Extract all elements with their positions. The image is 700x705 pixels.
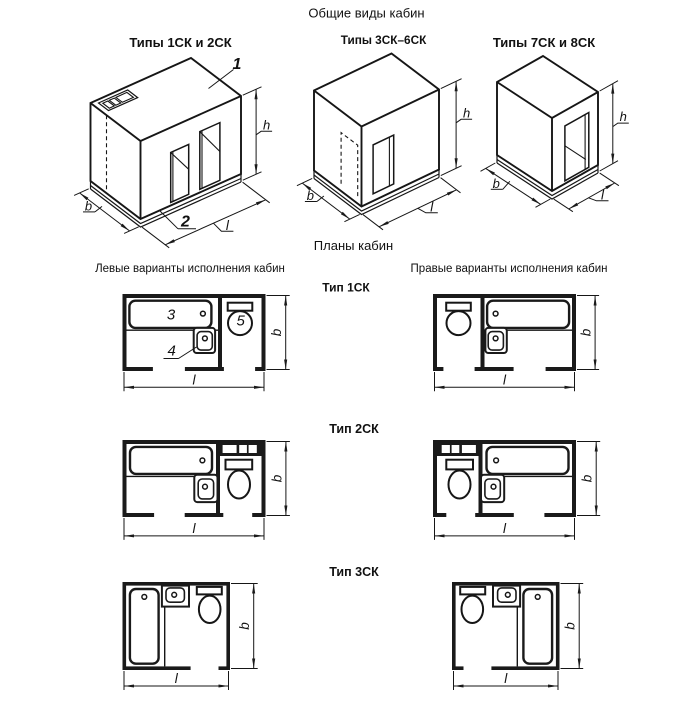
svg-text:Планы кабин: Планы кабин [314,238,393,253]
svg-text:l: l [503,521,507,536]
svg-text:l: l [503,372,507,387]
svg-text:h: h [263,117,270,132]
svg-text:b: b [85,198,92,213]
svg-text:Типы 1СК и 2СК: Типы 1СК и 2СК [129,35,231,50]
svg-text:l: l [193,372,197,387]
svg-text:Типы 3СК–6СК: Типы 3СК–6СК [341,33,427,47]
svg-text:2: 2 [180,214,190,231]
svg-text:b: b [580,474,595,482]
svg-text:h: h [620,109,627,124]
svg-text:Тип 1СК: Тип 1СК [322,281,370,295]
svg-text:Правые варианты исполнения каб: Правые варианты исполнения кабин [411,263,608,275]
svg-text:1: 1 [233,56,242,73]
svg-text:h: h [463,105,470,120]
svg-text:b: b [237,622,252,630]
svg-text:b: b [579,328,594,336]
svg-text:5: 5 [237,313,246,330]
svg-text:Левые варианты исполнения каби: Левые варианты исполнения кабин [95,263,285,275]
svg-text:b: b [563,622,578,630]
svg-text:Типы 7СК и 8СК: Типы 7СК и 8СК [493,35,595,50]
svg-text:b: b [269,328,284,336]
svg-text:l: l [193,521,197,536]
svg-text:l: l [175,671,179,686]
svg-text:b: b [493,176,500,191]
svg-text:Тип 2СК: Тип 2СК [329,422,379,436]
svg-text:Тип 3СК: Тип 3СК [329,565,379,579]
svg-text:3: 3 [167,307,176,324]
svg-text:Общие виды кабин: Общие виды кабин [308,6,424,21]
svg-text:l: l [504,671,508,686]
svg-text:4: 4 [168,343,176,360]
svg-text:b: b [307,188,314,203]
svg-text:b: b [269,474,284,482]
